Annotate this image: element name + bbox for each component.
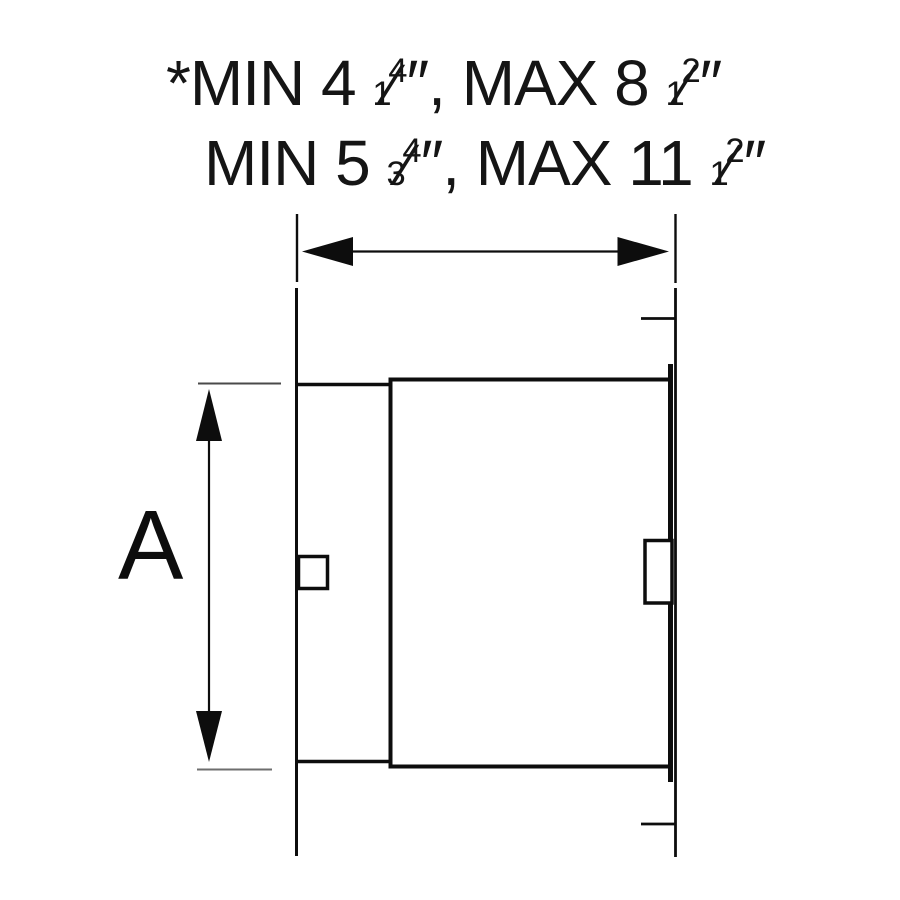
technical-drawing-page: *MIN 4 1⁄4″, MAX 8 1⁄2″ MIN 5 3⁄4″, MAX … bbox=[0, 0, 900, 900]
left-mounting-tab bbox=[299, 557, 328, 589]
a-dim-arrowhead-up-icon bbox=[196, 389, 222, 441]
top-dim-arrowhead-left-icon bbox=[302, 237, 353, 266]
duct-line-drawing bbox=[0, 0, 900, 900]
top-dim-arrowhead-right-icon bbox=[618, 237, 670, 266]
right-mounting-tab bbox=[645, 541, 672, 604]
a-dim-arrowhead-down-icon bbox=[196, 711, 222, 762]
